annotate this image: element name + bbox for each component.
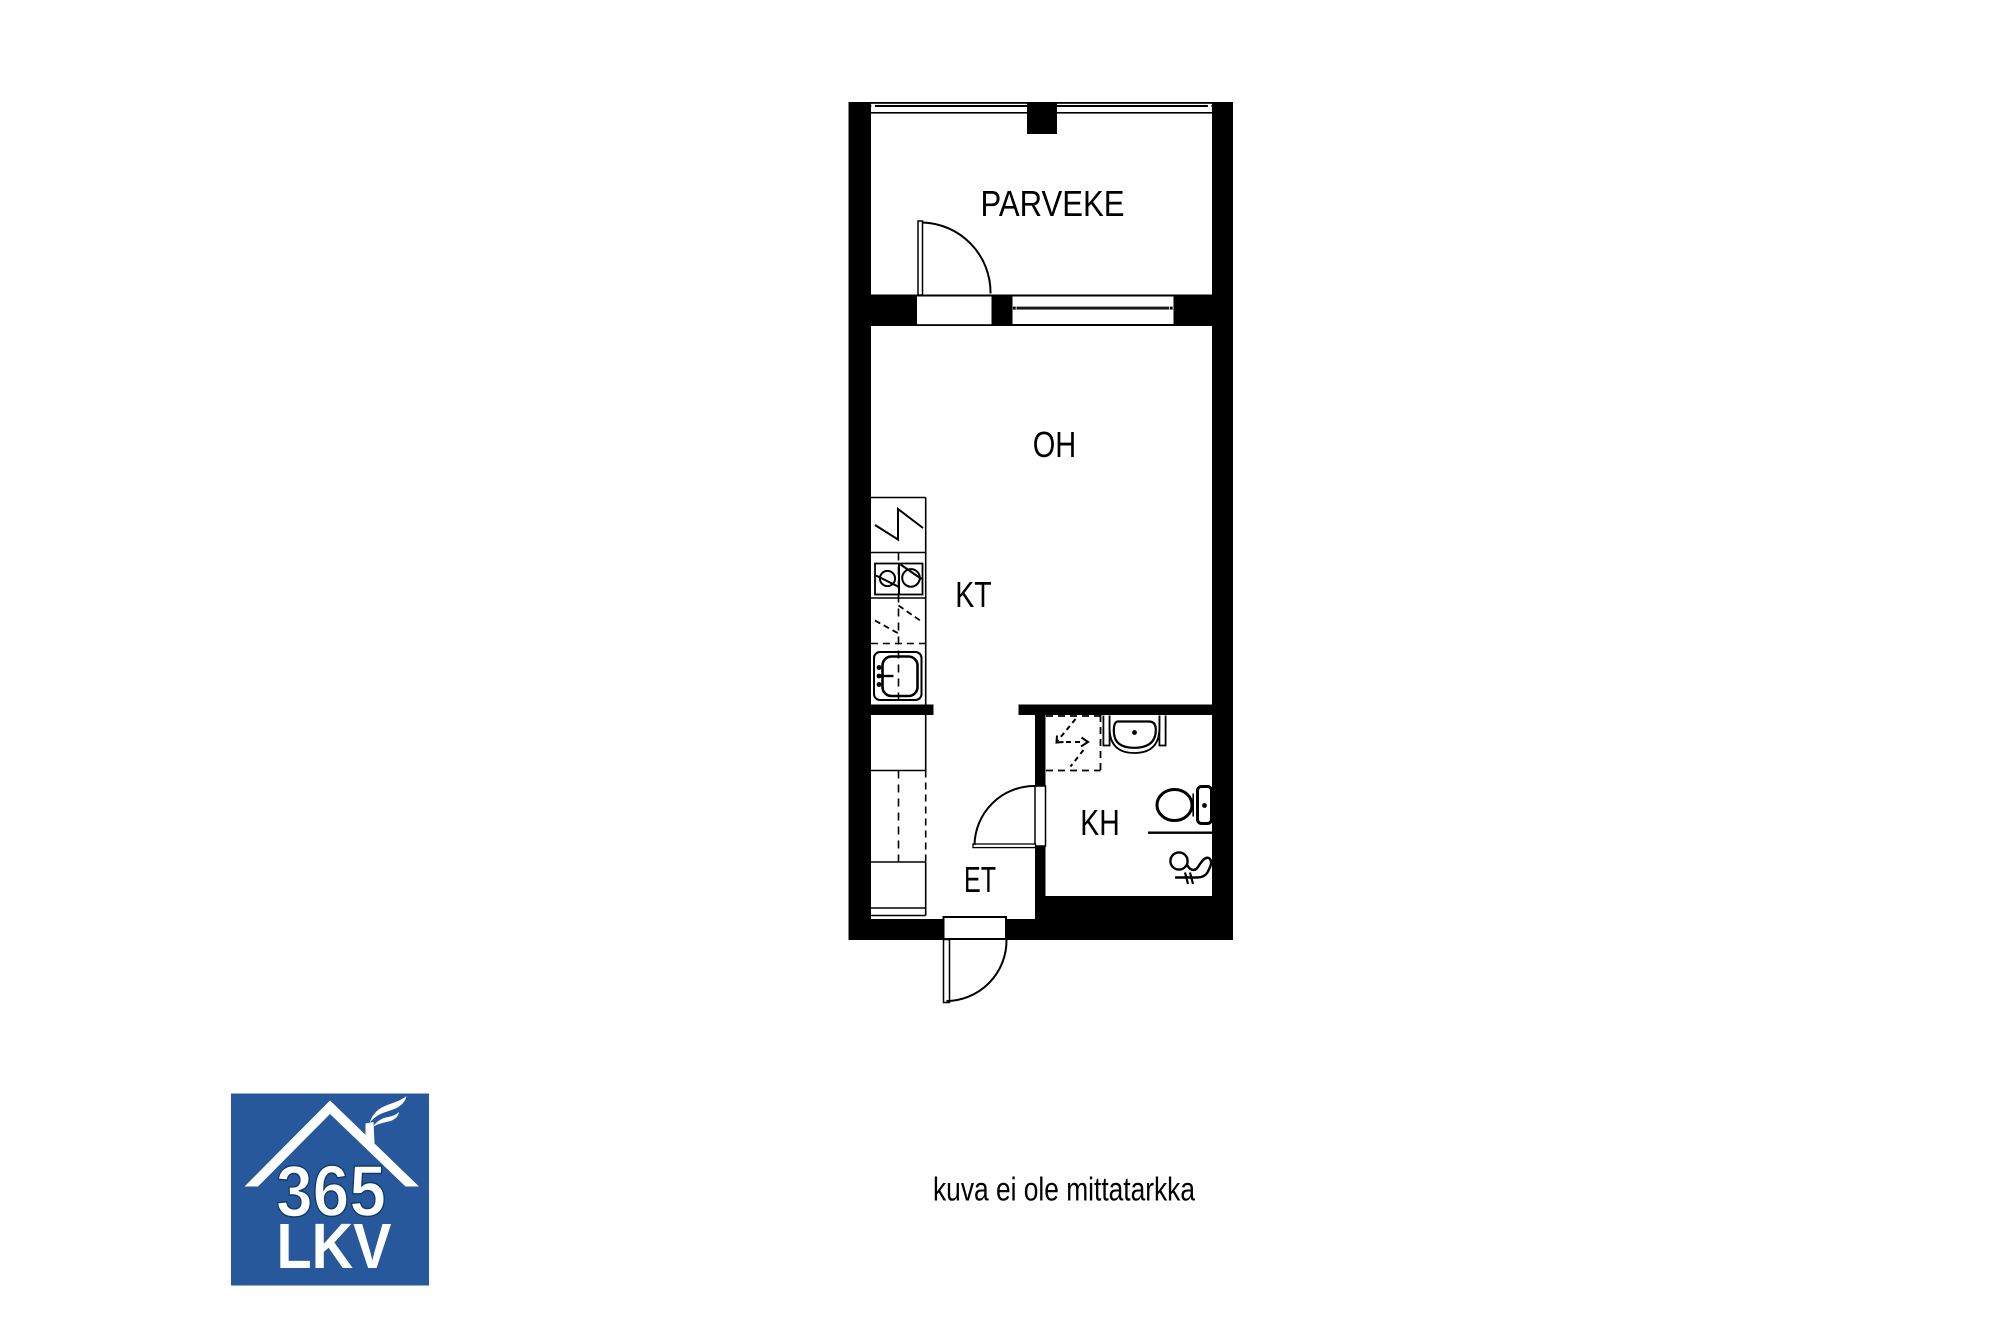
svg-text:KH: KH — [1080, 802, 1120, 843]
svg-text:PARVEKE: PARVEKE — [981, 183, 1125, 224]
svg-text:KT: KT — [955, 574, 992, 615]
svg-text:OH: OH — [1033, 424, 1077, 465]
svg-text:LKV: LKV — [277, 1210, 392, 1282]
svg-text:kuva ei ole mittatarkka: kuva ei ole mittatarkka — [933, 1172, 1195, 1209]
svg-text:ET: ET — [964, 859, 996, 900]
